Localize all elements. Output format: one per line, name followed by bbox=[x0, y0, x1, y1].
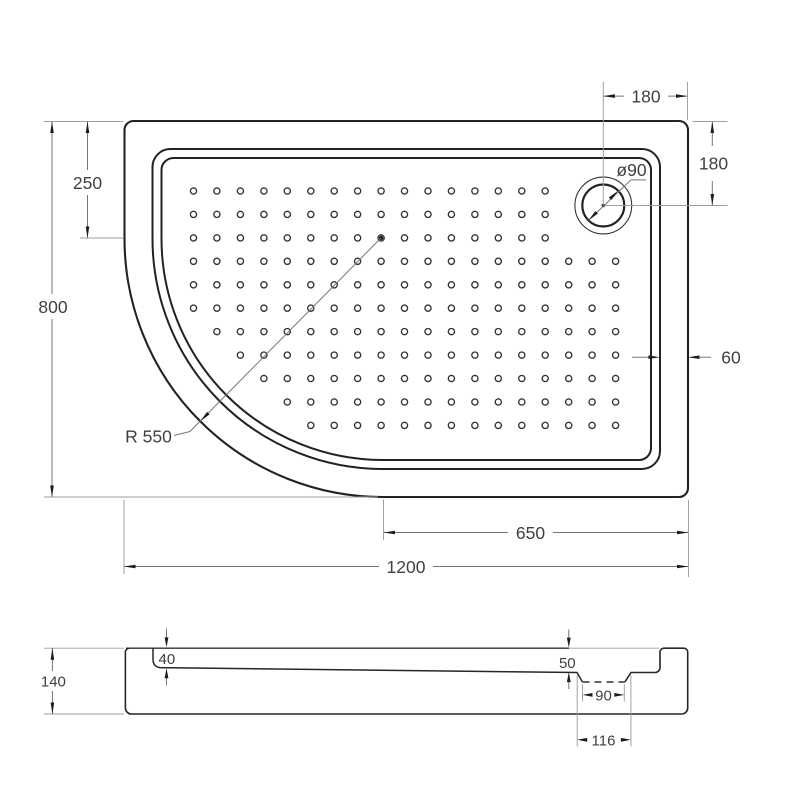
svg-text:ø90: ø90 bbox=[616, 160, 646, 180]
svg-text:116: 116 bbox=[592, 732, 616, 749]
svg-text:50: 50 bbox=[559, 655, 576, 672]
svg-text:180: 180 bbox=[699, 153, 728, 173]
svg-text:R 550: R 550 bbox=[125, 426, 172, 446]
svg-text:250: 250 bbox=[73, 173, 102, 193]
svg-text:800: 800 bbox=[38, 297, 67, 317]
svg-text:60: 60 bbox=[721, 347, 741, 367]
svg-text:1200: 1200 bbox=[387, 557, 426, 577]
svg-text:40: 40 bbox=[159, 651, 176, 668]
svg-text:90: 90 bbox=[595, 687, 612, 704]
svg-text:650: 650 bbox=[516, 523, 545, 543]
svg-text:180: 180 bbox=[631, 87, 660, 107]
svg-text:140: 140 bbox=[41, 674, 66, 691]
